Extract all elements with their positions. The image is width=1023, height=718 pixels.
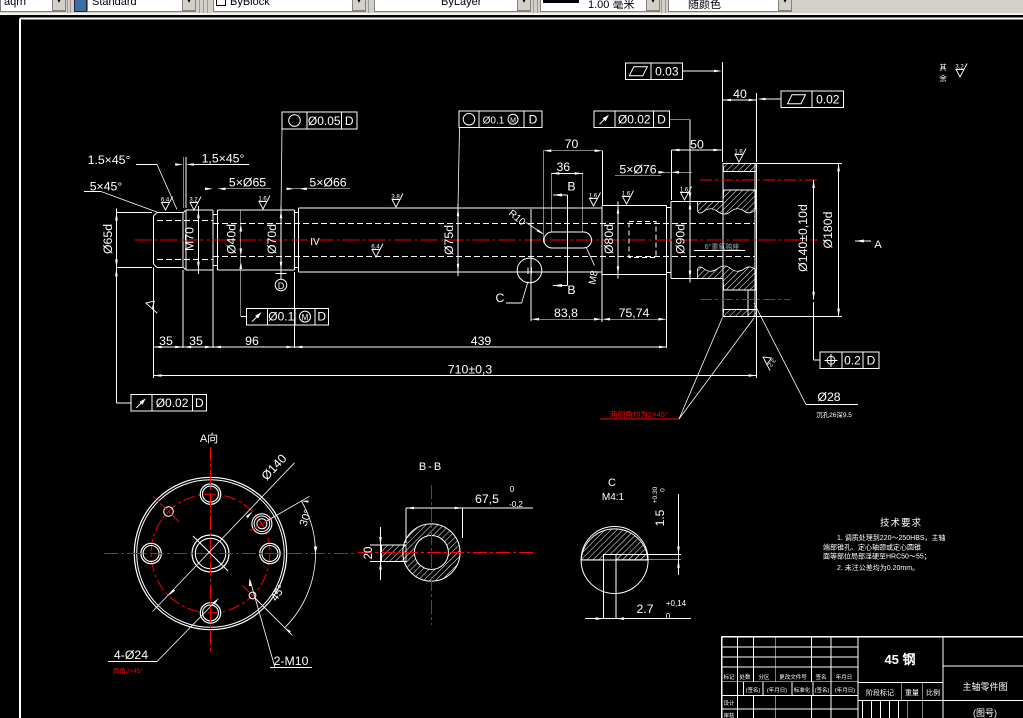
- svg-text:1.6: 1.6: [734, 149, 743, 155]
- svg-text:1.6: 1.6: [589, 193, 598, 199]
- svg-text:Ø65d: Ø65d: [101, 224, 115, 254]
- svg-text:75,74: 75,74: [619, 306, 650, 320]
- svg-text:0: 0: [510, 485, 515, 494]
- svg-text:0.02: 0.02: [816, 92, 840, 106]
- svg-text:(年月日): (年月日): [835, 686, 855, 694]
- svg-text:0: 0: [666, 612, 671, 621]
- svg-text:C: C: [608, 477, 616, 489]
- svg-text:其: 其: [939, 63, 947, 72]
- svg-text:35: 35: [189, 334, 203, 348]
- svg-text:更改文件号: 更改文件号: [779, 673, 807, 681]
- svg-text:两侧角均为2×45°: 两侧角均为2×45°: [610, 409, 668, 419]
- svg-text:1.6: 1.6: [680, 187, 689, 193]
- svg-text:36: 36: [556, 160, 570, 174]
- svg-text:3.8: 3.8: [391, 194, 400, 200]
- svg-text:主轴零件图: 主轴零件图: [962, 681, 1007, 692]
- svg-text:(图号): (图号): [973, 708, 997, 718]
- svg-text:M: M: [302, 313, 309, 322]
- svg-text:0.2: 0.2: [844, 353, 861, 367]
- svg-text:标准化: 标准化: [794, 686, 811, 694]
- svg-text:(签名): (签名): [815, 686, 830, 694]
- svg-text:B: B: [567, 180, 575, 194]
- svg-text:Ø0.02: Ø0.02: [156, 396, 189, 410]
- svg-text:83,8: 83,8: [554, 306, 578, 320]
- svg-text:D: D: [195, 396, 204, 410]
- svg-text:端部锥孔、定心轴颈或定心圆锥: 端部锥孔、定心轴颈或定心圆锥: [823, 543, 921, 552]
- svg-text:70: 70: [565, 137, 579, 151]
- svg-text:1.6: 1.6: [622, 191, 631, 197]
- svg-text:(年月日): (年月日): [767, 686, 787, 694]
- svg-text:A: A: [874, 239, 882, 251]
- svg-text:Ø75d: Ø75d: [442, 225, 456, 255]
- svg-text:Ø0.05: Ø0.05: [308, 114, 341, 128]
- svg-text:96: 96: [245, 334, 259, 348]
- svg-text:D: D: [278, 281, 285, 291]
- svg-text:40: 40: [733, 87, 747, 101]
- svg-text:+0,14: +0,14: [666, 599, 687, 608]
- svg-text:D: D: [345, 114, 354, 128]
- svg-text:倒角2×45°: 倒角2×45°: [113, 666, 144, 675]
- svg-text:签名: 签名: [815, 673, 826, 681]
- svg-text:1.6: 1.6: [258, 196, 267, 202]
- svg-text:重量: 重量: [905, 689, 919, 697]
- svg-text:0: 0: [660, 488, 667, 492]
- svg-text:3.2: 3.2: [189, 197, 198, 203]
- svg-text:处数: 处数: [739, 673, 751, 681]
- svg-text:67,5: 67,5: [475, 492, 499, 506]
- svg-text:5×Ø76: 5×Ø76: [619, 163, 656, 177]
- svg-text:面等部位局部淫硬至HRC50～55；: 面等部位局部淫硬至HRC50～55；: [823, 552, 931, 561]
- svg-text:2. 未注公差均为0.20mm。: 2. 未注公差均为0.20mm。: [837, 563, 919, 572]
- svg-text:设计: 设计: [723, 699, 735, 707]
- svg-text:(签名): (签名): [746, 686, 761, 694]
- svg-text:技术要求: 技术要求: [880, 517, 922, 529]
- svg-text:Ø0.1: Ø0.1: [268, 310, 294, 324]
- svg-text:Ø28: Ø28: [817, 390, 840, 404]
- svg-text:沉孔26深9.5: 沉孔26深9.5: [816, 410, 852, 419]
- svg-text:A向: A向: [200, 431, 218, 445]
- svg-text:50: 50: [690, 138, 704, 152]
- svg-text:1.5×45°: 1.5×45°: [88, 153, 131, 167]
- svg-text:阶段标记: 阶段标记: [866, 688, 894, 697]
- svg-text:D: D: [317, 310, 326, 324]
- svg-text:M4:1: M4:1: [602, 492, 625, 503]
- svg-text:45 钢: 45 钢: [884, 652, 915, 667]
- svg-text:Ø180d: Ø180d: [821, 211, 835, 248]
- svg-text:比例: 比例: [926, 688, 940, 697]
- svg-text:标记: 标记: [723, 673, 735, 681]
- svg-text:Ø90d: Ø90d: [674, 224, 688, 254]
- svg-text:Ø140±0,10d: Ø140±0,10d: [796, 204, 810, 272]
- svg-text:1,5×45°: 1,5×45°: [202, 152, 245, 166]
- svg-text:C: C: [496, 291, 505, 305]
- svg-text:2.7: 2.7: [636, 602, 653, 616]
- svg-text:IV: IV: [310, 237, 320, 248]
- svg-text:Ø70d: Ø70d: [265, 224, 279, 254]
- svg-text:B-B: B-B: [419, 461, 443, 473]
- svg-text:1.5: 1.5: [653, 509, 667, 526]
- svg-text:Ø0.1: Ø0.1: [483, 115, 505, 126]
- svg-text:D: D: [867, 353, 876, 367]
- svg-text:Ø40d: Ø40d: [225, 224, 239, 254]
- svg-text:1. 调质处理到220～250HBS，主轴: 1. 调质处理到220～250HBS，主轴: [837, 533, 946, 542]
- svg-text:6.4: 6.4: [371, 244, 380, 250]
- svg-text:M70: M70: [183, 227, 197, 251]
- svg-text:439: 439: [471, 334, 492, 348]
- svg-text:6°重氧独座: 6°重氧独座: [705, 242, 740, 251]
- svg-text:+0.30: +0.30: [652, 486, 659, 503]
- svg-text:分区: 分区: [758, 673, 770, 681]
- svg-text:5×Ø65: 5×Ø65: [229, 176, 266, 190]
- svg-text:B: B: [567, 283, 575, 297]
- svg-text:35: 35: [159, 334, 173, 348]
- svg-text:6.4: 6.4: [161, 197, 170, 203]
- svg-text:Ø0.02: Ø0.02: [618, 112, 651, 126]
- svg-text:M: M: [510, 117, 516, 124]
- svg-text:20: 20: [363, 547, 375, 560]
- svg-text:0.03: 0.03: [655, 64, 679, 78]
- svg-text:2-M10: 2-M10: [274, 654, 309, 668]
- svg-text:-0,2: -0,2: [509, 500, 523, 509]
- svg-text:Ø80d: Ø80d: [602, 224, 616, 254]
- svg-text:D: D: [657, 112, 666, 126]
- svg-text:4-Ø24: 4-Ø24: [114, 648, 148, 662]
- svg-text:5×Ø66: 5×Ø66: [309, 176, 346, 190]
- svg-text:3.2: 3.2: [955, 64, 964, 70]
- svg-text:余: 余: [939, 73, 947, 83]
- svg-text:710±0,3: 710±0,3: [448, 363, 493, 377]
- svg-text:年月日: 年月日: [836, 673, 853, 681]
- svg-text:D: D: [529, 112, 538, 126]
